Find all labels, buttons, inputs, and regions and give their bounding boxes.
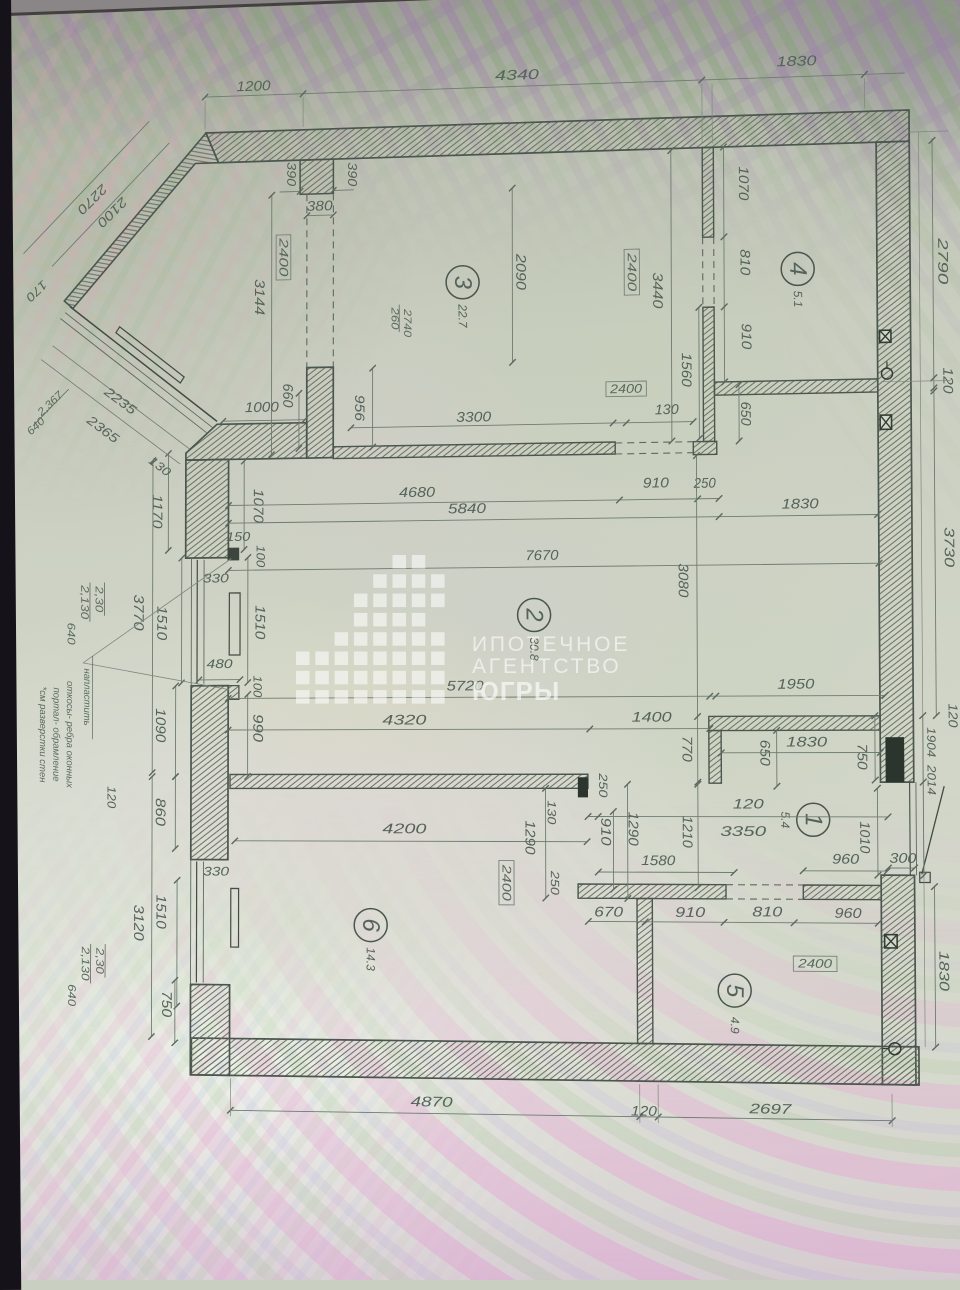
svg-text:АГЕНТСТВО: АГЕНТСТВО xyxy=(472,655,622,678)
svg-text:ЮГРЫ: ЮГРЫ xyxy=(472,676,560,706)
svg-text:ИПОТЕЧНОЕ: ИПОТЕЧНОЕ xyxy=(472,633,630,656)
